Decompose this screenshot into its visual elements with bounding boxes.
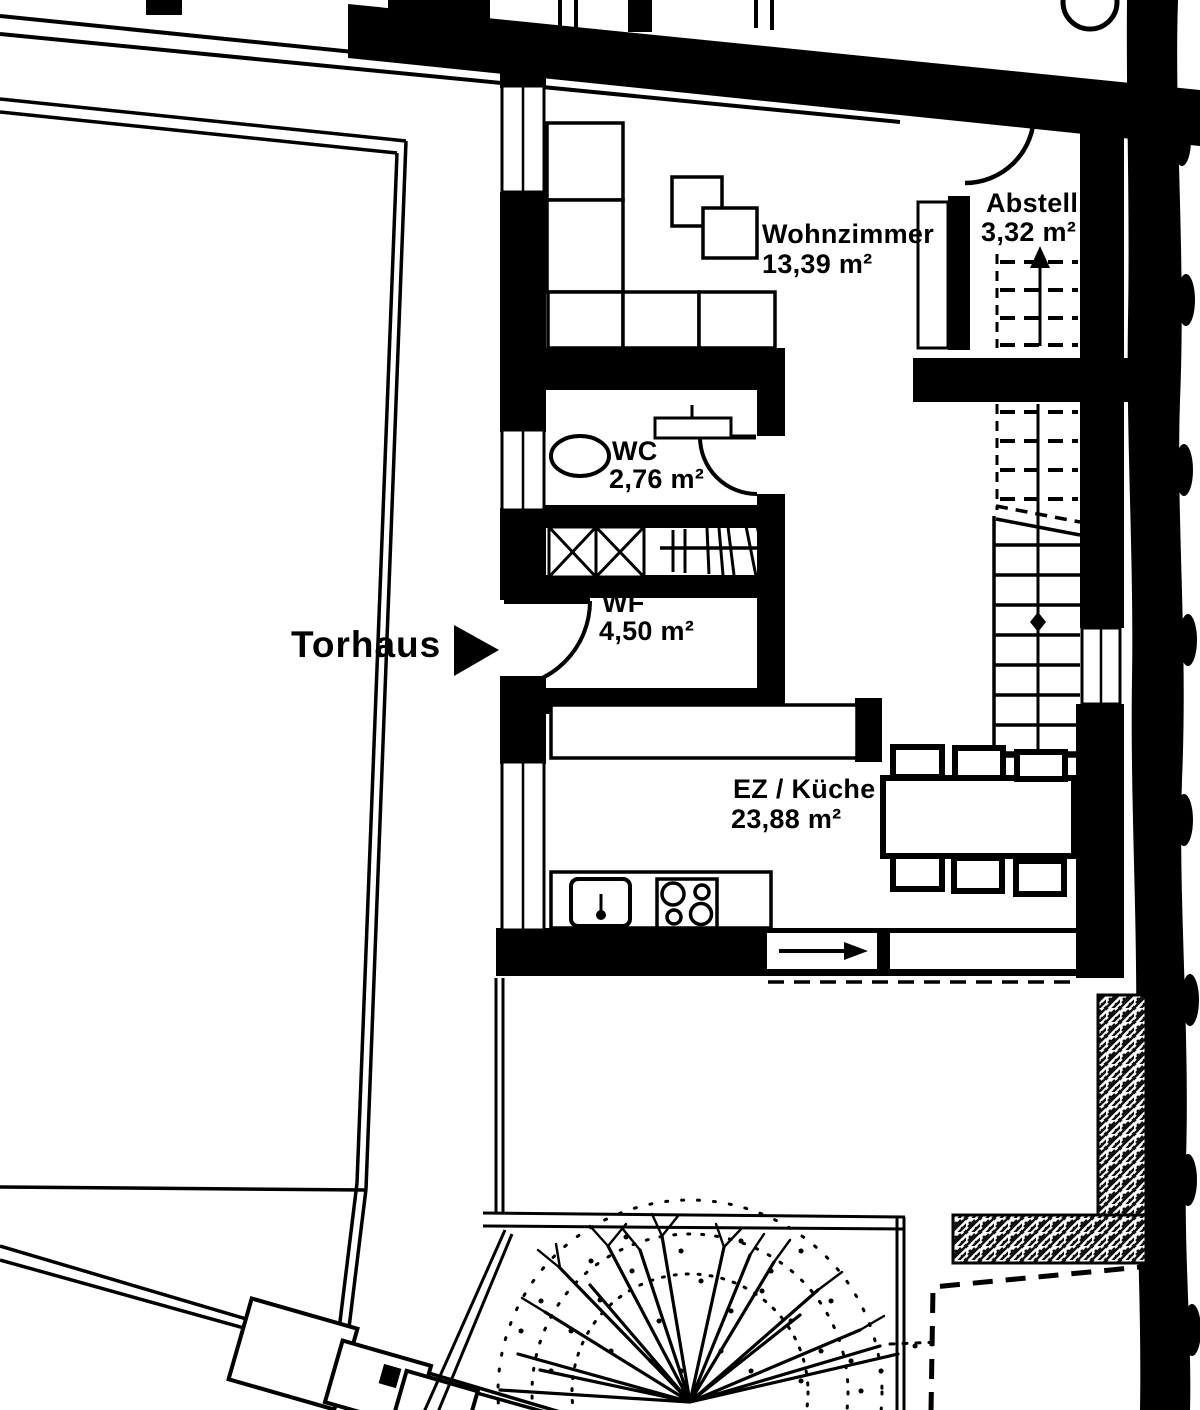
- room-label-wf-name: WF: [602, 590, 645, 617]
- wc-basin: [551, 436, 609, 476]
- kitchen-window: [502, 762, 544, 930]
- tree: [498, 1200, 940, 1410]
- up-arrow-icon: [1030, 246, 1050, 268]
- room-label-wc-area: 2,76 m²: [609, 466, 704, 493]
- shaft-and-wardrobe: [549, 526, 770, 577]
- staircase: [994, 404, 1080, 756]
- dashed-plot-boundary: [931, 1266, 1152, 1410]
- site-label-torhaus: Torhaus: [291, 626, 441, 663]
- wc-window: [502, 430, 544, 510]
- stove-icon: [657, 879, 717, 928]
- room-label-ez-kueche-name: EZ / Küche: [733, 776, 876, 803]
- terrace-lines: [424, 978, 905, 1410]
- stair-hall-window: [1082, 628, 1120, 704]
- chair: [1016, 861, 1064, 894]
- garden-rubble-wall: [953, 995, 1146, 1263]
- entrance-door: [504, 601, 590, 687]
- livingroom-furniture: [547, 123, 775, 348]
- courtyard-boundary: [0, 99, 560, 1410]
- kitchen-counter-long: [551, 705, 857, 758]
- chair: [893, 856, 942, 889]
- chair: [955, 748, 1003, 778]
- wc-door: [700, 437, 757, 494]
- chair: [954, 858, 1002, 891]
- room-label-wc-name: WC: [612, 438, 658, 465]
- livingroom-window: [502, 86, 544, 192]
- entrance-pointer-icon: [454, 625, 499, 676]
- sink-icon: [571, 879, 630, 926]
- side-tables: [672, 177, 757, 258]
- chair: [1017, 752, 1065, 779]
- room-label-wohnzimmer-area: 13,39 m²: [762, 251, 872, 278]
- driveway-steps: [229, 1298, 478, 1410]
- dining-set: [883, 747, 1074, 894]
- room-label-wohnzimmer-name: Wohnzimmer: [762, 221, 934, 248]
- dining-table: [883, 778, 1074, 856]
- chair: [893, 747, 942, 777]
- floor-plan: Torhaus Wohnzimmer 13,39 m² Abstell. 3,3…: [0, 0, 1200, 1410]
- room-label-abstell-area: 3,32 m²: [981, 219, 1076, 246]
- room-label-ez-kueche-area: 23,88 m²: [731, 806, 841, 833]
- wc-shelf: [655, 418, 731, 438]
- room-label-wf-area: 4,50 m²: [599, 618, 694, 645]
- room-label-abstell-name: Abstell.: [986, 190, 1086, 217]
- storage-overhead-stair: [997, 246, 1078, 348]
